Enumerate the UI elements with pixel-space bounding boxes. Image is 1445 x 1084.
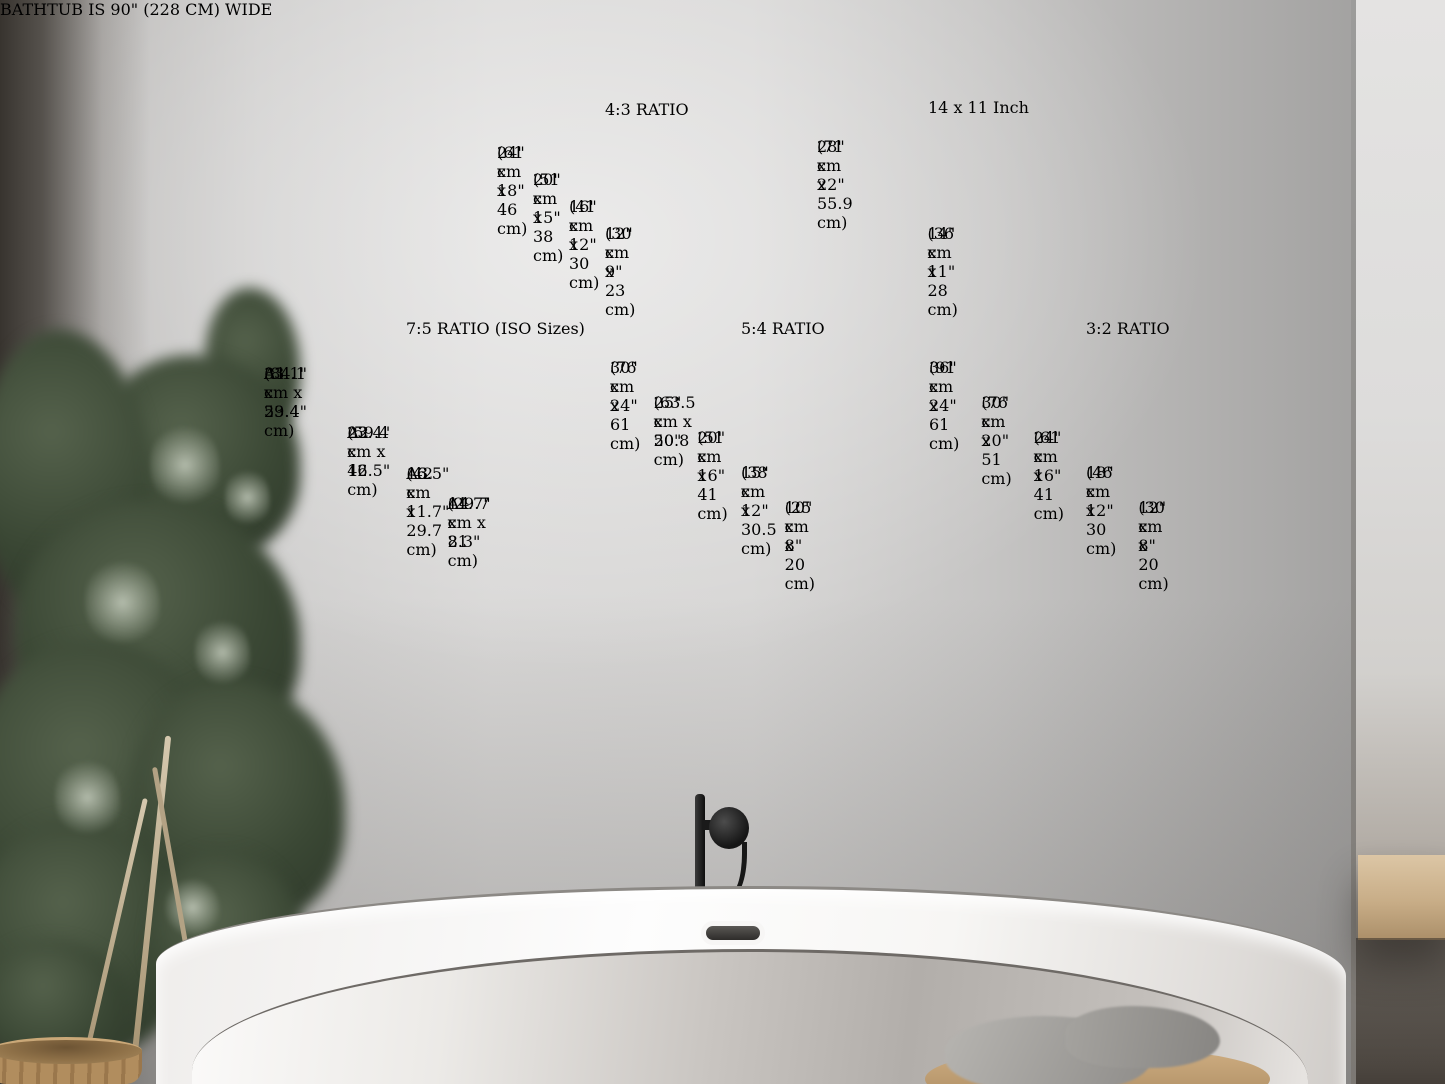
size-cm-label: (59.4 cm x 42 cm): [347, 423, 389, 499]
size-cm-label: (84.1 cm x 59.4 cm): [264, 364, 306, 440]
size-cm-label: (29.7 cm x 21 cm): [448, 494, 490, 570]
group-title-5-4-ratio: 5:4 RATIO: [741, 319, 825, 338]
size-cm-label: (46 cm x 30 cm): [1086, 463, 1116, 558]
group-title-7-5-ratio: 7:5 RATIO (ISO Sizes): [406, 319, 585, 338]
size-cm-label: (61 cm x 46 cm): [497, 143, 527, 238]
size-cm-label: (38 cm x 30.5 cm): [741, 463, 777, 558]
towel: [1135, 1030, 1260, 1084]
size-cm-label: (71 cm x 55.9 cm): [817, 137, 853, 232]
size-box: 10" x 8"(25 cm x 20 cm): [785, 498, 872, 568]
size-cm-label: (51 cm x 38 cm): [533, 170, 563, 265]
bathroom-size-guide-mockup: 4:3 RATIO 14 x 11 Inch 7:5 RATIO (ISO Si…: [0, 0, 1445, 1084]
size-box: A411.7" x 8.3"(29.7 cm x 21 cm): [448, 494, 548, 565]
size-cm-label: (91 cm x 61 cm): [929, 358, 959, 453]
size-cm-label: (42 cm x 29.7 cm): [406, 464, 442, 559]
bathtub-width-caption: BATHTUB IS 90" (228 CM) WIDE: [0, 0, 272, 19]
size-cm-label: (36 cm x 28 cm): [928, 224, 958, 319]
wall-corner-edge: [1351, 0, 1356, 1084]
size-cm-label: (25 cm x 20 cm): [785, 498, 815, 593]
size-cm-label: (63.5 cm x 50.8 cm): [654, 393, 696, 469]
size-cm-label: (30 cm x 20 cm): [1138, 498, 1168, 593]
group-title-4-3-ratio: 4:3 RATIO: [605, 100, 689, 119]
size-box: 12" x 9"(30 cm x 23 cm): [605, 224, 713, 305]
shelf-shadow: [1356, 938, 1445, 1068]
size-cm-label: (76 cm x 61 cm): [610, 358, 640, 453]
group-title-14x11-inch: 14 x 11 Inch: [928, 98, 1029, 117]
size-cm-label: (61 cm x 41 cm): [1034, 428, 1064, 523]
size-cm-label: (30 cm x 23 cm): [605, 224, 635, 319]
size-cm-label: (76 cm x 51 cm): [981, 393, 1011, 488]
group-title-3-2-ratio: 3:2 RATIO: [1086, 319, 1170, 338]
size-cm-label: (51 cm x 41 cm): [697, 428, 727, 523]
wood-shelf: [1358, 855, 1445, 940]
overflow-drain: [701, 921, 765, 945]
size-box: 12" x 8"(30 cm x 20 cm): [1138, 498, 1243, 568]
size-cm-label: (41 cm x 30 cm): [569, 197, 599, 292]
size-box: 14" x 11"(36 cm x 28 cm): [928, 224, 1039, 311]
